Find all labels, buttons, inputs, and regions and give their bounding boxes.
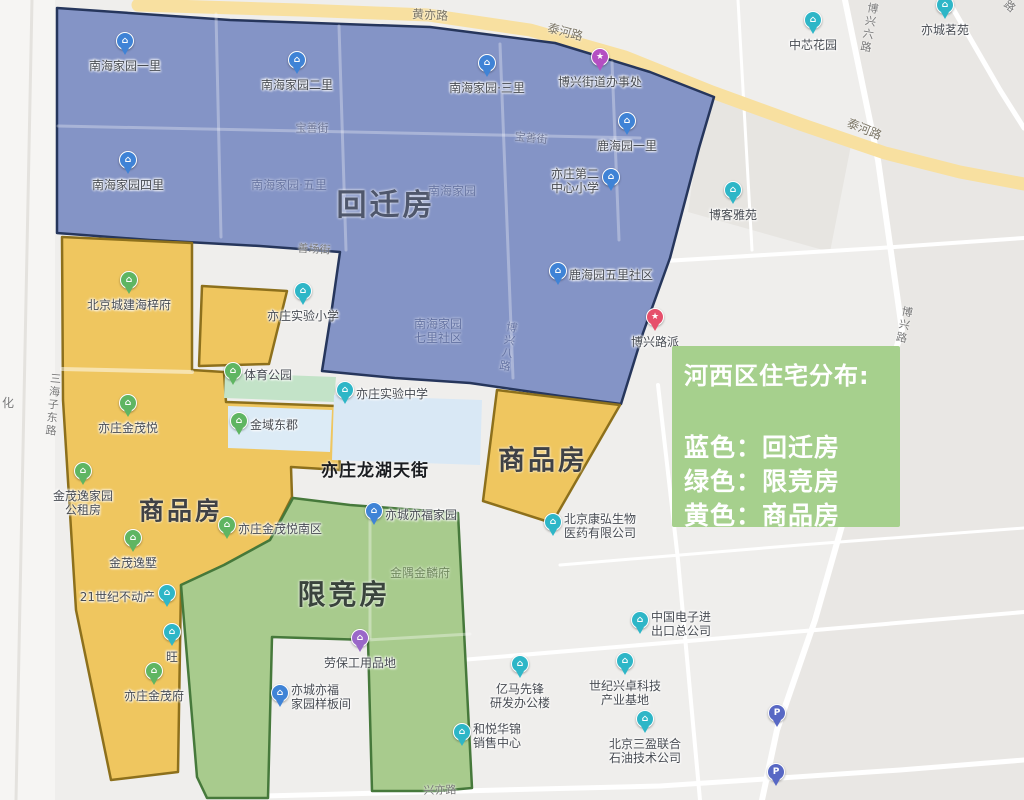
map-pin[interactable] (511, 655, 529, 680)
map-pin[interactable] (119, 394, 137, 419)
poi-label: 亦城茗苑 (921, 23, 969, 37)
poi-label: 21世纪不动产 (80, 590, 155, 604)
map-pin[interactable] (544, 513, 562, 538)
zone-label: 回迁房 (337, 189, 436, 224)
map-pin[interactable] (618, 112, 636, 137)
poi-label: 金茂逸家园公租房 (53, 489, 113, 517)
poi-label: 南海家园·三里 (449, 81, 525, 95)
map-pin[interactable] (631, 611, 649, 636)
poi-label: 北京三盈联合石油技术公司 (609, 737, 681, 765)
map-pin[interactable] (365, 502, 383, 527)
poi-label: 亦城亦福家园样板间 (291, 683, 351, 711)
zone-yellow-small-quad (199, 286, 287, 366)
street-major-label: 亦庄龙湖天街 (321, 462, 429, 482)
legend-title: 河西区住宅分布: (684, 356, 890, 391)
poi-label: 中芯花园 (789, 38, 837, 52)
poi-label: 亦庄金茂悦南区 (238, 522, 322, 536)
map-pin[interactable] (230, 412, 248, 437)
map-pin[interactable] (124, 529, 142, 554)
poi-label: 亦庄金茂府 (124, 689, 184, 703)
parking-icon[interactable] (767, 763, 785, 788)
poi-label: 博兴街道办事处 (558, 75, 642, 89)
map-pin[interactable] (351, 629, 369, 654)
map-pin[interactable] (646, 308, 664, 333)
parking-icon[interactable] (768, 704, 786, 729)
poi-label: 旺 (166, 650, 178, 664)
map-pin[interactable] (158, 584, 176, 609)
poi-label: 南海家园四里 (92, 178, 164, 192)
map-pin[interactable] (218, 516, 236, 541)
legend-panel: 河西区住宅分布: 蓝色：回迁房 绿色：限竞房 黄色：商品房 (672, 346, 900, 527)
shiyan-school-block (332, 395, 482, 465)
poi-label: 中国电子进出口总公司 (651, 610, 711, 638)
zone-label: 商品房 (498, 445, 588, 476)
poi-label: 亦庄实验小学 (267, 309, 339, 323)
map-pin[interactable] (616, 652, 634, 677)
map-pin[interactable] (549, 262, 567, 287)
legend-line-yellow: 黄色：商品房 (684, 499, 890, 533)
zone-label: 商品房 (139, 498, 223, 527)
poi-label: 亦庄第二中心小学 (551, 167, 599, 195)
faint-label: 南海家园七里社区 (414, 318, 462, 346)
map-pin[interactable] (163, 623, 181, 648)
poi-label: 北京康弘生物医药有限公司 (564, 512, 636, 540)
poi-label: 南海家园一里 (89, 59, 161, 73)
poi-label: 亦庄实验中学 (356, 387, 428, 401)
map-pin[interactable] (120, 271, 138, 296)
legend-line-green: 绿色：限竞房 (684, 465, 890, 499)
map-pin[interactable] (453, 723, 471, 748)
faint-label: 南海家园 (428, 185, 476, 199)
map-pin[interactable] (116, 32, 134, 57)
poi-label: 南海家园二里 (261, 78, 333, 92)
map-pin[interactable] (636, 710, 654, 735)
poi-label: 金域东郡 (250, 418, 298, 432)
poi-label: 亦城亦福家园 (385, 508, 457, 522)
legend-line-blue: 蓝色：回迁房 (684, 431, 890, 465)
map-pin[interactable] (591, 48, 609, 73)
road-label: 兴亦路 (423, 784, 456, 797)
map-pin[interactable] (288, 51, 306, 76)
map-pin[interactable] (602, 168, 620, 193)
map-pin[interactable] (224, 362, 242, 387)
poi-label: 世纪兴卓科技产业基地 (589, 679, 661, 707)
map-pin[interactable] (119, 151, 137, 176)
zone-label: 限竞房 (297, 579, 390, 611)
road-label: 宝善街 (296, 123, 329, 136)
road-label: 善场街 (297, 243, 331, 257)
map-pin[interactable] (478, 54, 496, 79)
poi-label: 亿马先锋研发办公楼 (490, 682, 550, 710)
map-pin[interactable] (724, 181, 742, 206)
faint-label: 南海家园·五里 (251, 179, 327, 193)
map-pin[interactable] (271, 684, 289, 709)
road-label: 化 (2, 397, 14, 411)
poi-label: 博客雅苑 (709, 208, 757, 222)
poi-label: 亦庄金茂悦 (98, 421, 158, 435)
map-pin[interactable] (936, 0, 954, 21)
poi-label: 鹿海园五里社区 (569, 268, 653, 282)
poi-label: 金茂逸墅 (109, 556, 157, 570)
map-pin[interactable] (145, 662, 163, 687)
map-pin[interactable] (74, 462, 92, 487)
poi-label: 劳保工用品地 (324, 656, 396, 670)
poi-label: 鹿海园一里 (597, 139, 657, 153)
map-pin[interactable] (336, 381, 354, 406)
poi-label: 体育公园 (244, 368, 292, 382)
map-pin[interactable] (294, 282, 312, 307)
map-canvas[interactable]: 河西区住宅分布: 蓝色：回迁房 绿色：限竞房 黄色：商品房 南海家园一里南海家园… (0, 0, 1024, 800)
map-pin[interactable] (804, 11, 822, 36)
poi-label: 北京城建海梓府 (87, 298, 171, 312)
poi-label: 和悦华锦销售中心 (473, 722, 521, 750)
faint-label: 金隅金麟府 (390, 567, 450, 581)
road-label: 黄亦路 (412, 8, 449, 24)
